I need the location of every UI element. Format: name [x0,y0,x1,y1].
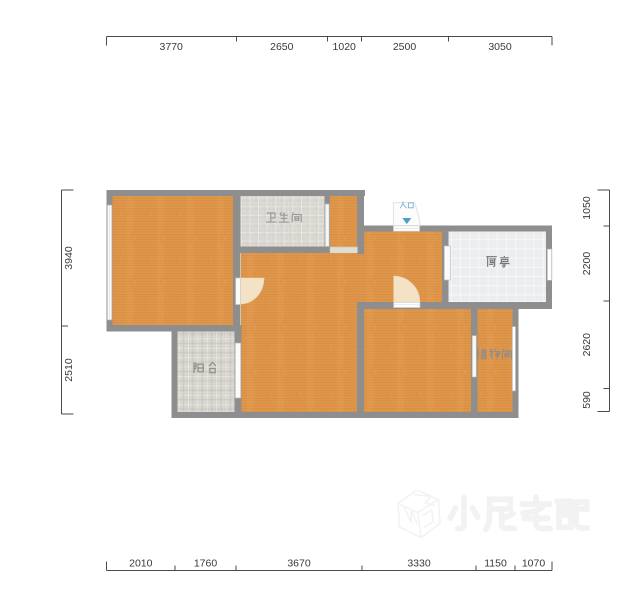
svg-text:2200: 2200 [581,252,593,276]
svg-text:3770: 3770 [160,41,184,53]
svg-text:1020: 1020 [333,41,357,53]
svg-text:2010: 2010 [129,558,153,570]
svg-text:2650: 2650 [270,41,294,53]
svg-text:3050: 3050 [488,41,512,53]
svg-text:1150: 1150 [484,558,507,570]
svg-text:3940: 3940 [63,246,75,270]
svg-text:2620: 2620 [581,333,593,357]
svg-text:1070: 1070 [522,558,546,570]
svg-text:590: 590 [581,391,593,409]
svg-text:3330: 3330 [407,558,431,570]
svg-text:1050: 1050 [581,196,593,220]
svg-text:1760: 1760 [194,558,218,570]
svg-text:2500: 2500 [393,41,417,53]
svg-text:2510: 2510 [63,358,75,382]
svg-text:3670: 3670 [287,558,311,570]
